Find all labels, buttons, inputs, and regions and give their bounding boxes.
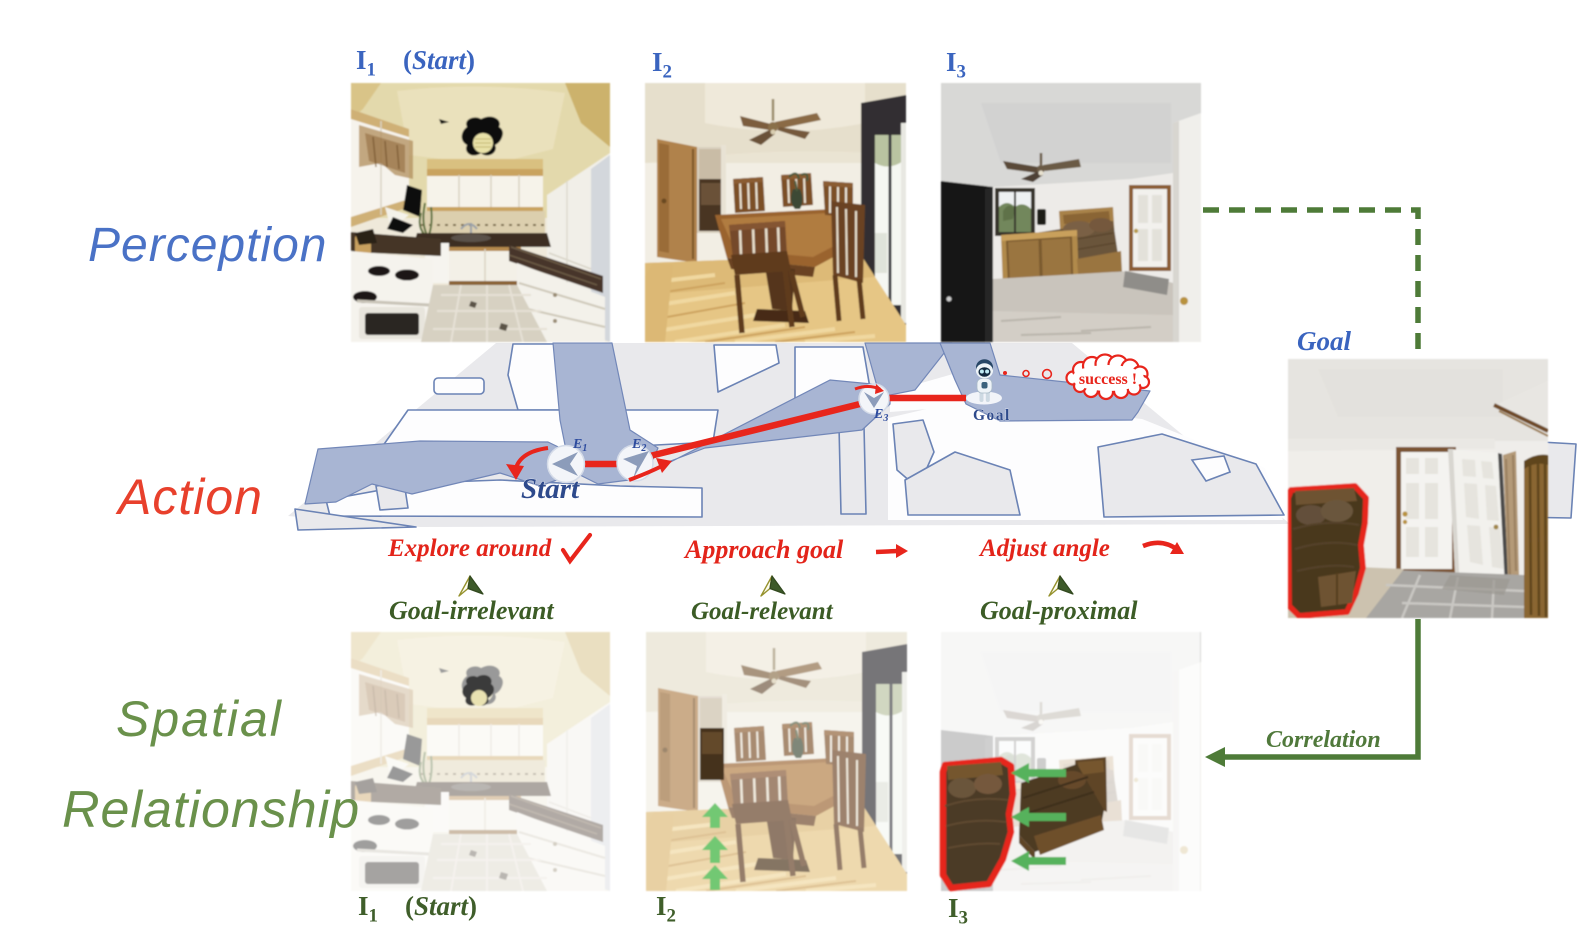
svg-text:success !: success ! (1079, 371, 1137, 388)
svg-text:Goal: Goal (973, 407, 1011, 424)
svg-text:Start: Start (521, 473, 580, 505)
